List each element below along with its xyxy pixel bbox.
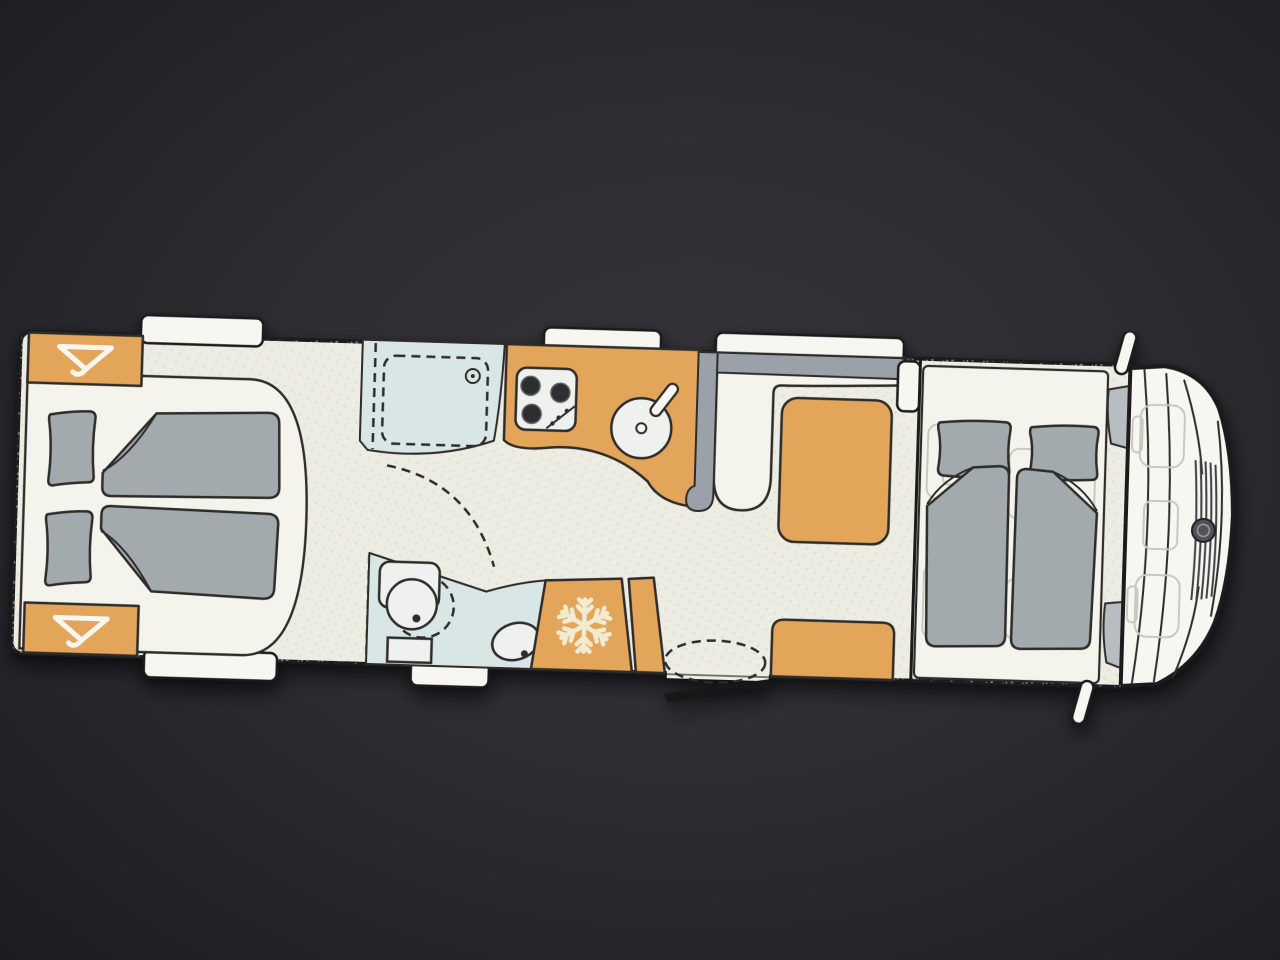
photo-background [0, 0, 1280, 960]
hob-burner [551, 383, 571, 403]
pillow [44, 510, 93, 586]
floorplan-drawing [2, 298, 1264, 736]
cab-side-glass-bottom [1102, 601, 1122, 668]
side-bench [771, 619, 895, 680]
hob-burner [522, 404, 542, 424]
cab-side-glass-top [1106, 385, 1128, 448]
brand-logo-icon [1192, 519, 1216, 543]
wardrobe-rear-top [27, 332, 142, 385]
sideboard-cabinet-tab [897, 361, 921, 412]
toilet-bowl [386, 579, 438, 631]
floorplan-container [2, 298, 1264, 736]
sink-drain [636, 423, 646, 433]
dining-table [778, 398, 892, 545]
hob [515, 367, 577, 431]
fridge [531, 574, 668, 673]
drop-down-bed [914, 366, 1108, 684]
wardrobe-rear-bottom [23, 602, 138, 655]
hob-burner [521, 376, 541, 396]
pillow [47, 410, 96, 486]
window-rear-top [141, 315, 264, 347]
shower-room [359, 340, 504, 457]
toilet-base [387, 638, 432, 663]
